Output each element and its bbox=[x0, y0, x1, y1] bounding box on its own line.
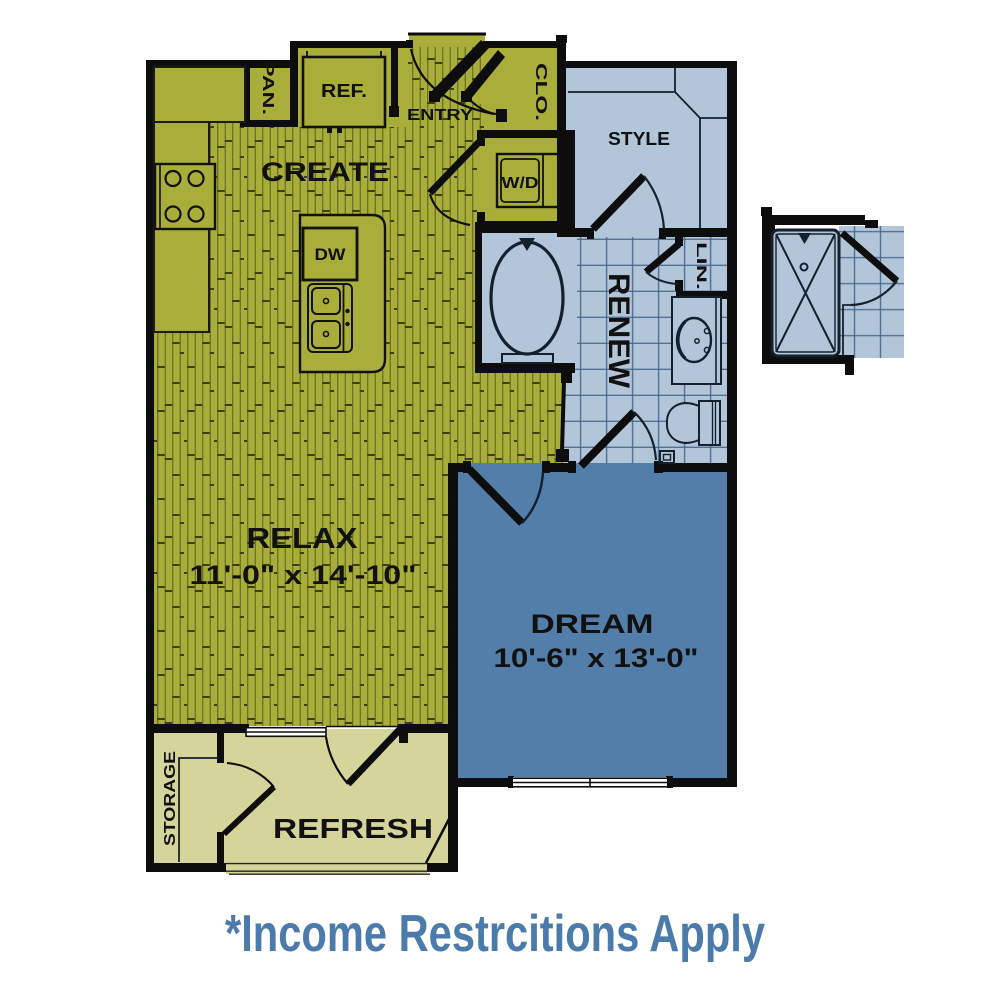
svg-text:CREATE: CREATE bbox=[261, 157, 389, 187]
svg-text:10'-6" x 13'-0": 10'-6" x 13'-0" bbox=[494, 643, 699, 673]
svg-text:RENEW: RENEW bbox=[602, 273, 635, 389]
svg-text:11'-0" x 14'-10": 11'-0" x 14'-10" bbox=[190, 560, 417, 590]
svg-text:LIN.: LIN. bbox=[694, 242, 710, 290]
svg-text:STORAGE: STORAGE bbox=[162, 751, 179, 846]
svg-text:CLO.: CLO. bbox=[532, 63, 549, 121]
svg-text:DW: DW bbox=[315, 245, 347, 264]
svg-text:STYLE: STYLE bbox=[608, 129, 670, 149]
svg-text:ENTRY: ENTRY bbox=[407, 107, 473, 124]
svg-text:*Income Restrcitions Apply: *Income Restrcitions Apply bbox=[225, 905, 765, 963]
svg-text:RELAX: RELAX bbox=[247, 523, 359, 555]
svg-text:DREAM: DREAM bbox=[531, 609, 654, 639]
svg-text:PAN.: PAN. bbox=[259, 61, 276, 115]
svg-text:REFRESH: REFRESH bbox=[273, 813, 433, 844]
svg-text:REF.: REF. bbox=[321, 81, 367, 101]
svg-text:W/D: W/D bbox=[502, 175, 539, 192]
